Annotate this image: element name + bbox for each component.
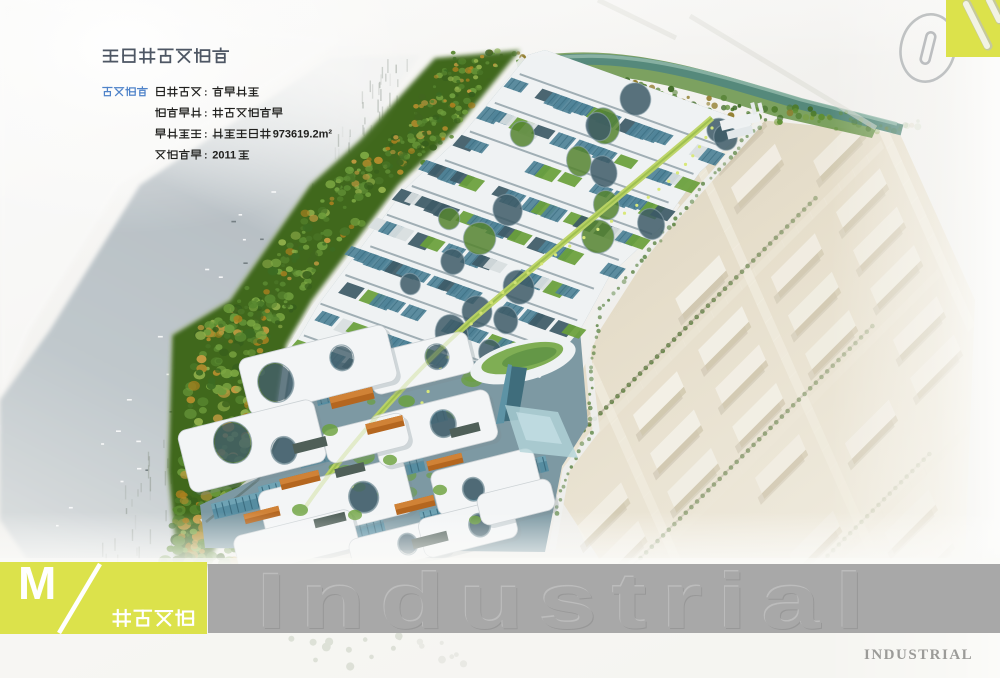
svg-text:Industrial: Industrial: [257, 557, 879, 645]
svg-text:973619.2m²: 973619.2m²: [273, 129, 333, 141]
svg-text:2011: 2011: [212, 150, 236, 162]
svg-text:INDUSTRIAL: INDUSTRIAL: [864, 647, 973, 663]
svg-text:M: M: [18, 557, 56, 609]
